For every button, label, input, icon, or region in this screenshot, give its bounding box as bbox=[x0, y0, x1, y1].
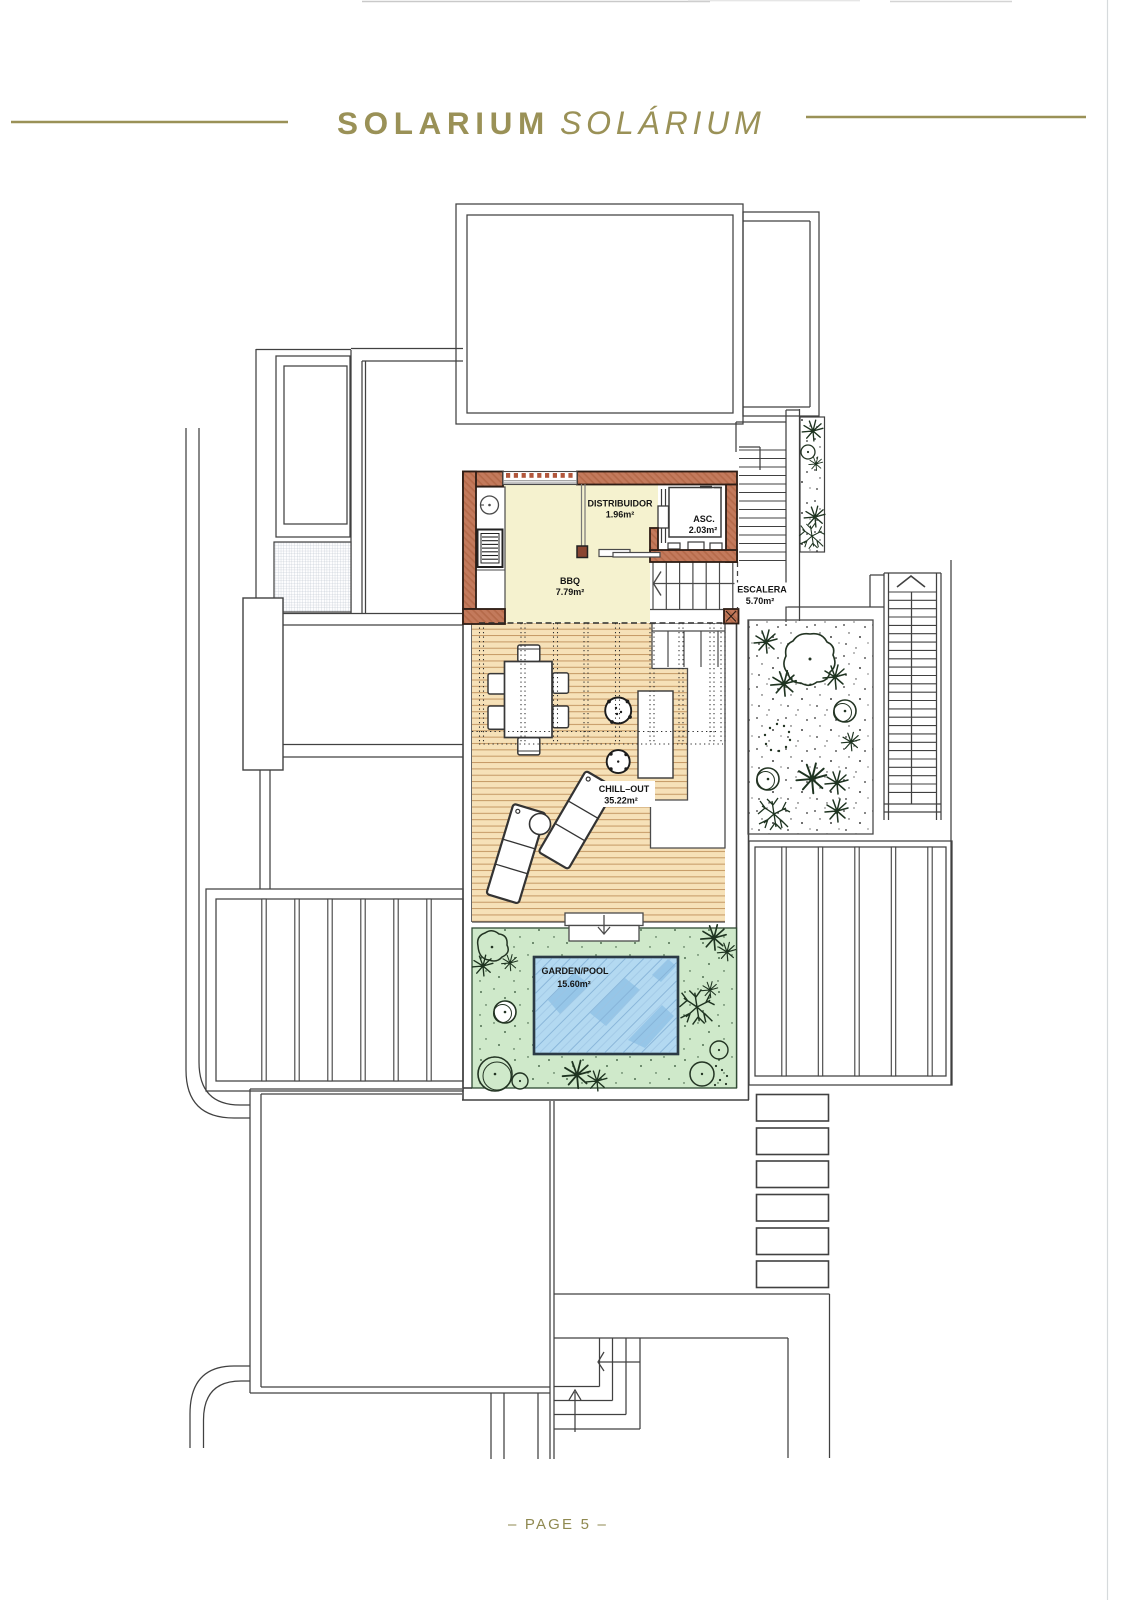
svg-text:ESCALERA: ESCALERA bbox=[737, 585, 787, 595]
svg-text:1.96m²: 1.96m² bbox=[606, 510, 635, 520]
svg-text:DISTRIBUIDOR: DISTRIBUIDOR bbox=[588, 499, 654, 509]
svg-text:2.03m²: 2.03m² bbox=[689, 525, 718, 535]
svg-text:35.22m²: 35.22m² bbox=[604, 796, 638, 806]
svg-text:ASC.: ASC. bbox=[693, 514, 715, 524]
svg-text:15.60m²: 15.60m² bbox=[557, 979, 591, 989]
svg-text:SOLÁRIUM: SOLÁRIUM bbox=[560, 105, 766, 141]
svg-text:BBQ: BBQ bbox=[560, 576, 580, 586]
svg-text:CHILL–OUT: CHILL–OUT bbox=[599, 784, 650, 794]
svg-text:5.70m²: 5.70m² bbox=[746, 596, 775, 606]
svg-text:SOLARIUM: SOLARIUM bbox=[337, 105, 550, 141]
svg-text:– PAGE 5 –: – PAGE 5 – bbox=[508, 1516, 608, 1533]
svg-text:7.79m²: 7.79m² bbox=[556, 587, 585, 597]
svg-text:GARDEN/POOL: GARDEN/POOL bbox=[541, 966, 609, 976]
